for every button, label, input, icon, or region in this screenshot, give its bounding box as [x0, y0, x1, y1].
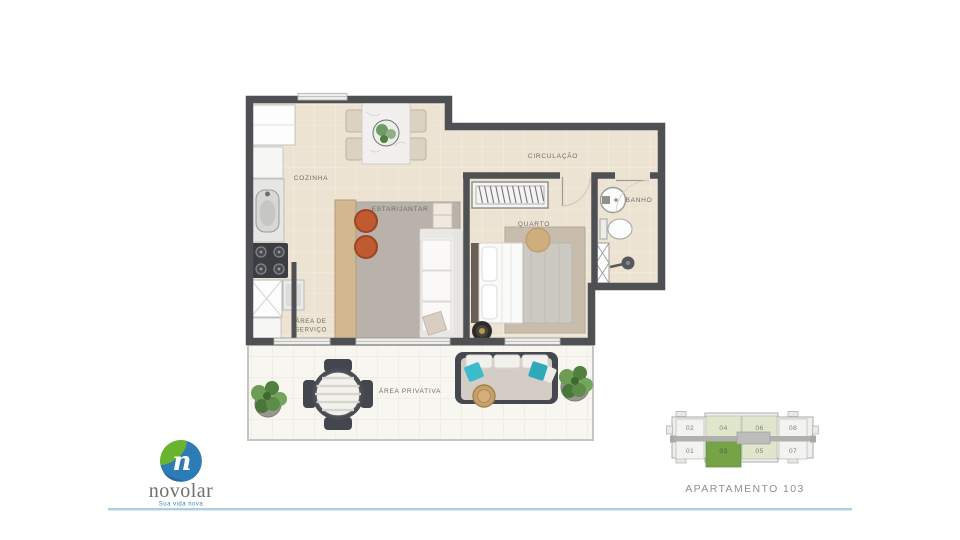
keyplan-label-04: 04 [719, 425, 727, 432]
room-label-area-privativa: ÁREA PRIVATIVA [379, 386, 441, 395]
novolar-logo-monogram: n [173, 447, 192, 477]
keyplan-label-02: 02 [686, 425, 694, 432]
sofa-icon [420, 229, 462, 341]
floor-plan: COZINHA ESTAR/JANTAR CIRCULAÇÃO QUARTO B… [246, 93, 662, 440]
room-label-circulacao: CIRCULAÇÃO [528, 151, 578, 160]
stool-icon [355, 236, 377, 258]
footer-divider [108, 508, 852, 510]
floorplan-canvas: COZINHA ESTAR/JANTAR CIRCULAÇÃO QUARTO B… [0, 0, 960, 540]
service-cabinet-icon [252, 318, 281, 341]
washbasin-icon [601, 188, 626, 213]
bar-counter-icon [335, 200, 356, 342]
keyplan-label-01: 01 [686, 448, 694, 455]
keyplan-label-03: 03 [719, 448, 727, 455]
brand-tagline: Sua vida nova [159, 502, 204, 508]
room-label-cozinha: COZINHA [294, 175, 329, 182]
toilet-icon [600, 219, 632, 239]
keyplan-label-07: 07 [789, 448, 797, 455]
kitchen-sink-icon [251, 179, 284, 242]
stool-icon [355, 210, 377, 232]
kitchen-cabinet-icon [252, 147, 283, 178]
room-label-banho: BANHO [626, 197, 653, 204]
brand-name: novolar [149, 480, 214, 502]
fridge-icon [252, 105, 295, 145]
washer-icon [251, 280, 282, 317]
side-shelf-icon [433, 203, 452, 228]
room-label-area-servico-2: SERVIÇO [295, 327, 327, 334]
stove-icon [252, 243, 288, 278]
outdoor-sofa-icon [455, 352, 558, 407]
keyplan: 02 04 06 08 01 03 05 07 APARTAMENTO 103 [667, 412, 819, 496]
room-label-estar-jantar: ESTAR/JANTAR [372, 206, 429, 213]
bed-icon [471, 243, 572, 323]
keyplan-label-06: 06 [755, 425, 763, 432]
keyplan-label-05: 05 [755, 448, 763, 455]
room-label-area-servico-1: ÁREA DE [295, 318, 326, 325]
keyplan-caption: APARTAMENTO 103 [685, 483, 804, 495]
floorplan-page: COZINHA ESTAR/JANTAR CIRCULAÇÃO QUARTO B… [0, 0, 960, 540]
pouf-icon [526, 228, 550, 252]
wardrobe-icon [472, 182, 548, 208]
shaft-hatch-icon [596, 243, 609, 283]
brand-logo: n novolar Sua vida nova [143, 426, 213, 507]
keyplan-label-08: 08 [789, 425, 797, 432]
room-label-quarto: QUARTO [518, 221, 550, 228]
